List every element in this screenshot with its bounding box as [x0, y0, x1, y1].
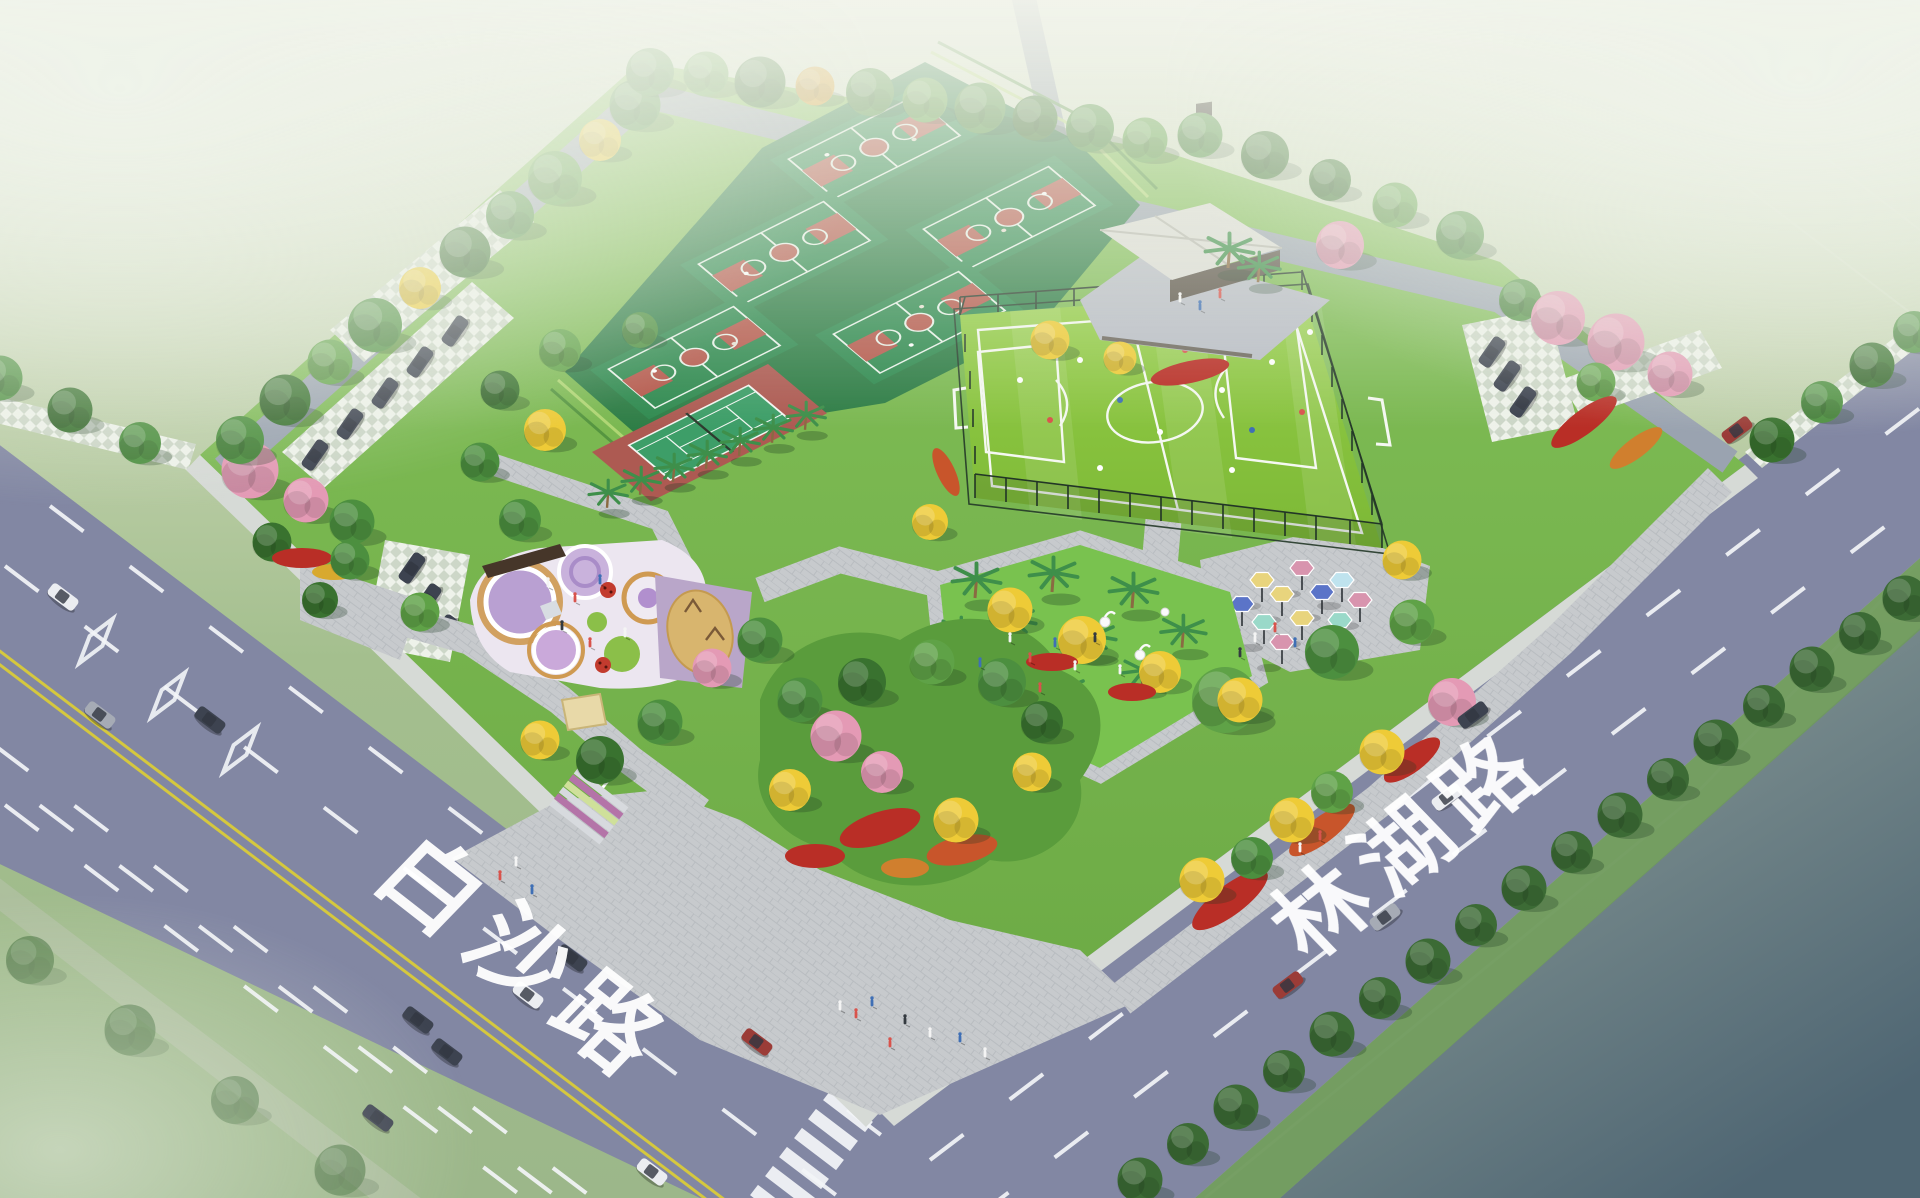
shade-canopy [562, 694, 606, 730]
scene-canvas: 白沙路 林湖路 [0, 0, 1920, 1198]
park-aerial-rendering: 白沙路 林湖路 [0, 0, 1920, 1198]
